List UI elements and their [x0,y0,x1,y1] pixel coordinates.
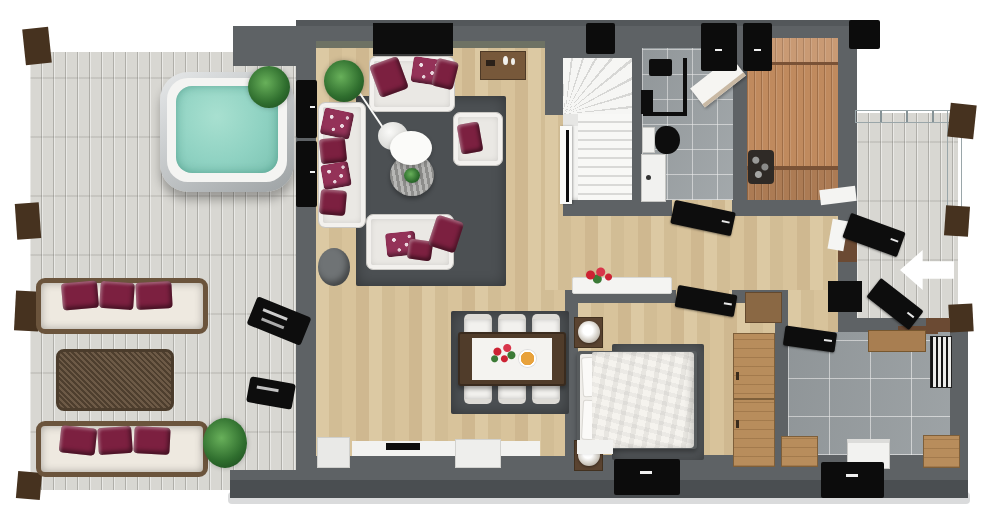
vase [511,58,515,65]
porch-post-mid-right [944,205,970,237]
stair-winders [563,58,632,114]
doormat [930,336,952,388]
living-window-sill [352,441,540,456]
deck-corner-post-4 [16,471,42,500]
deck-corner-post-1 [22,27,52,66]
deck-privacy-wall-top [233,26,300,66]
wardrobe-handle [736,372,739,380]
deck-plant-top [248,66,290,108]
bottom-window-bedroom [614,459,680,495]
porch-post-bottom-right [948,303,973,332]
outdoor-pillow [97,426,133,455]
mudroom-cabinet-right [923,435,960,468]
stair-straight-run [578,114,632,200]
porch-post-top-right [947,103,976,140]
bottom-window-mudroom [821,462,884,498]
shower-head-unit [649,59,672,76]
living-west-window-2 [296,141,317,207]
top-window-bathroom-2 [743,23,772,71]
floor-plan-scene [0,0,1000,507]
mudroom-bench [868,330,926,352]
faucet [646,175,651,180]
hall-black-cabinet [828,281,862,312]
outdoor-pillow [59,425,98,456]
top-window-sauna [849,20,880,49]
duvet [592,352,694,448]
pillow-patterned [320,161,352,190]
decor-item [486,60,495,66]
stair-handrail [566,130,569,202]
glass-railing-top [855,110,961,123]
wardrobe-handle [736,420,739,428]
top-window-bathroom-1 [701,23,737,71]
wardrobe [733,333,775,467]
toilet-tank [642,127,655,153]
deck-plant-bottom [203,418,247,468]
arc-floor-lamp-shade-lower [390,131,432,165]
fruit-plate [519,350,536,367]
vase [503,56,508,65]
shower-glass-vertical [683,58,687,116]
shower-fixture [641,90,653,114]
white-cabinet-left [317,437,350,468]
wicker-coffee-table [56,349,174,411]
deck-corner-post-2 [15,202,41,240]
tv [373,23,453,56]
outdoor-pillow [135,281,172,310]
pillow-maroon [319,189,347,216]
table-plant [404,168,420,183]
media-sideboard [480,51,526,80]
bedroom-window-sill [577,440,613,454]
living-west-window-1 [296,80,317,138]
shoe-cabinet [745,292,782,323]
outdoor-pillow [133,426,170,455]
bathroom-sink [641,154,666,202]
mudroom-cabinet-left [781,436,818,467]
wardrobe-divider [734,398,774,400]
sauna-heater [748,150,774,184]
staircase [563,58,632,200]
pillow-maroon [319,137,347,165]
console-flowers [582,266,616,286]
flower-centerpiece [489,342,517,366]
table-lamp-top [578,321,600,343]
white-window-seat [455,439,501,468]
sill-vent [386,443,420,450]
top-window-stairs [586,23,615,54]
outdoor-pillow [99,281,135,310]
stair-landing-wall [563,114,578,126]
toilet-seat [655,126,680,154]
outdoor-pillow [61,280,99,310]
ottoman [318,248,350,286]
living-corner-plant [324,60,364,102]
